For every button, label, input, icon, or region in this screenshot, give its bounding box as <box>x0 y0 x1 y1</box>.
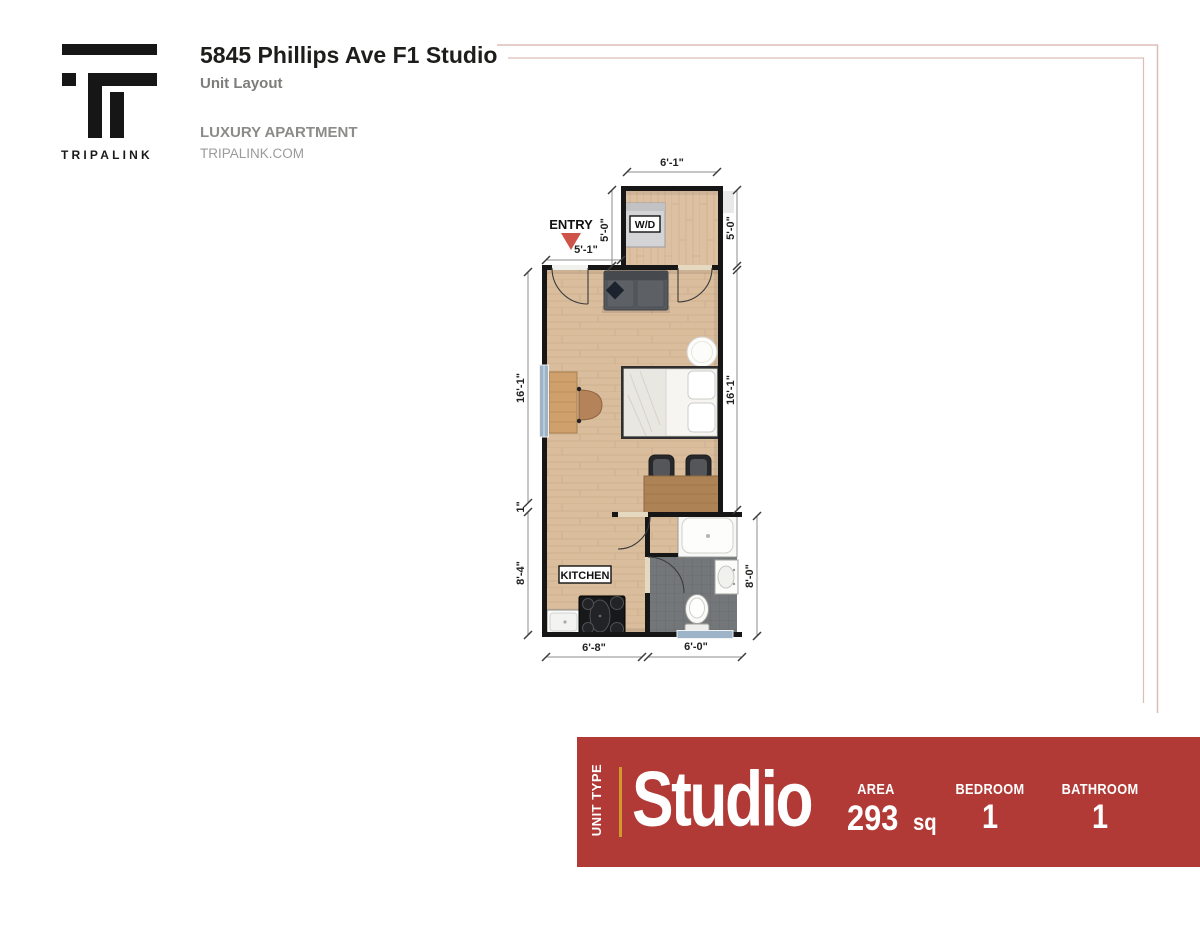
stove <box>579 596 625 636</box>
website: TRIPALINK.COM <box>200 146 304 161</box>
floorplan-sheet: TRIPALINK 5845 Phillips Ave F1 Studio Un… <box>0 0 1200 927</box>
desk <box>549 372 577 433</box>
page-title: 5845 Phillips Ave F1 Studio <box>200 42 497 69</box>
wd-label-box: W/D <box>630 216 660 232</box>
dim-top-width: 6'-1" <box>660 157 684 169</box>
tripalink-logo-icon <box>62 44 158 144</box>
kitchen-label-box: KITCHEN <box>559 566 611 583</box>
window-left <box>540 365 549 437</box>
page-subtitle: Unit Layout <box>200 75 283 92</box>
sofa <box>602 271 670 313</box>
bathroom-vanity <box>715 560 738 594</box>
kitchen-label: KITCHEN <box>561 570 610 582</box>
side-table <box>687 337 717 367</box>
bathroom-value: 1 <box>1053 800 1147 836</box>
kitchen-sink <box>547 610 580 634</box>
area-label: AREA <box>834 781 919 798</box>
window-bathroom <box>677 631 733 639</box>
wd-label: W/D <box>635 219 656 231</box>
area-value-row: 293 sq <box>847 799 940 839</box>
bathtub <box>678 514 737 557</box>
dim-laundry-right: 5'-0" <box>725 216 737 240</box>
area-unit: sq <box>913 809 937 836</box>
toilet <box>685 595 709 635</box>
unit-type-value: Studio <box>632 761 811 839</box>
gold-divider <box>619 767 622 837</box>
bedroom-label: BEDROOM <box>943 781 1037 798</box>
area-value: 293 <box>847 799 898 839</box>
bathroom-label: BATHROOM <box>1053 781 1147 798</box>
stat-area: AREA <box>826 781 926 798</box>
dim-main-right: 16'-1" <box>725 375 737 405</box>
bed <box>621 366 720 439</box>
tagline: LUXURY APARTMENT <box>200 124 358 141</box>
stat-bedroom: BEDROOM 1 <box>935 781 1045 836</box>
dim-laundry-left: 5'-0" <box>599 218 611 242</box>
stat-bathroom: BATHROOM 1 <box>1045 781 1155 836</box>
dim-entry-width: 5'-1" <box>574 244 598 256</box>
unit-info-banner: UNIT TYPE Studio AREA 293 sq BEDROOM 1 B… <box>577 737 1200 867</box>
dim-bottom-kitchen: 6'-8" <box>582 642 606 654</box>
dim-kitchen-left: 8'-4" <box>515 561 527 585</box>
dim-bottom-bath: 6'-0" <box>684 641 708 653</box>
floorplan: 6'-1" 5'-0" 5'-0" 5'-1" 16'-1" 16'-1" 1"… <box>500 150 790 670</box>
entry-label: ENTRY <box>549 217 593 232</box>
logo-wordmark: TRIPALINK <box>61 148 161 162</box>
unit-type-label: UNIT TYPE <box>587 740 607 860</box>
tripalink-logo <box>62 44 158 149</box>
dim-main-left: 16'-1" <box>515 373 527 403</box>
dim-jog: 1" <box>515 501 527 512</box>
dim-bath-right: 8'-0" <box>744 564 756 588</box>
bedroom-value: 1 <box>943 800 1037 836</box>
dining-table <box>644 476 720 513</box>
